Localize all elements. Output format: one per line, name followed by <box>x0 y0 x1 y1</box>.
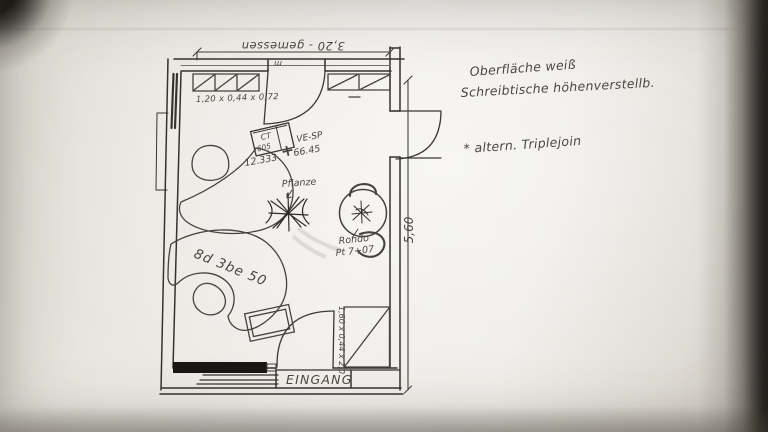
photo-of-floorplan-sketch: CT 605 + VE-SP 66.45 12.333 3,20 - gemes… <box>0 0 768 432</box>
ct-equipment-box: CT 605 + VE-SP 66.45 12.333 <box>244 123 324 169</box>
entrance-door-leaf <box>333 311 334 368</box>
sideboard-left-hatched <box>193 74 259 91</box>
ct-number-1: 66.45 <box>293 143 322 159</box>
furniture <box>168 74 390 373</box>
pedestal-outer <box>245 305 295 342</box>
note-line-1: Oberfläche weiß <box>469 57 576 79</box>
window-glazing-lines <box>172 74 178 128</box>
radiator-bar <box>173 362 267 373</box>
pencil-shading <box>293 228 340 257</box>
entrance-label: EINGANG <box>286 372 353 387</box>
note-line-2: Schreibtische höhenverstellb. <box>460 75 655 100</box>
ct-ve-label: VE-SP <box>296 130 324 145</box>
tall-cabinet <box>344 307 390 367</box>
dim-right-label: 5,60 <box>402 216 416 243</box>
desk-pedestal <box>245 305 295 342</box>
ct-number-2: 12.333 <box>244 152 279 169</box>
office-chair-lower <box>193 283 225 315</box>
note-line-3: * altern. Triplejoin <box>463 133 582 156</box>
plant <box>266 190 340 257</box>
dim-top-unit: m <box>274 59 282 68</box>
right-door-swing-arc <box>396 112 441 159</box>
entrance-door-swing-arc <box>277 311 334 367</box>
sideboard-dimensions: 1,20 x 0,44 x 0,72 <box>196 92 279 105</box>
desk-lower-freeform <box>168 230 287 330</box>
pedestal-inner <box>249 309 289 336</box>
handwritten-notes: Oberfläche weiß Schreibtische höhenverst… <box>460 57 655 156</box>
office-chair-upper <box>192 145 229 180</box>
floorplan-drawing: CT 605 + VE-SP 66.45 12.333 3,20 - gemes… <box>0 0 768 432</box>
sideboard-right-hatched <box>328 74 390 97</box>
desk-code-label: 8d 3be 50 <box>192 246 270 290</box>
table-plant-scribble <box>352 201 372 223</box>
plant-label: Pflanze <box>281 177 316 190</box>
ct-box-label-1: CT <box>260 131 273 142</box>
cabinet-dimensions: 1,60 x 0,44 x 2,0 <box>337 306 346 374</box>
dim-top-label: 3,20 - gemessen <box>241 39 345 53</box>
